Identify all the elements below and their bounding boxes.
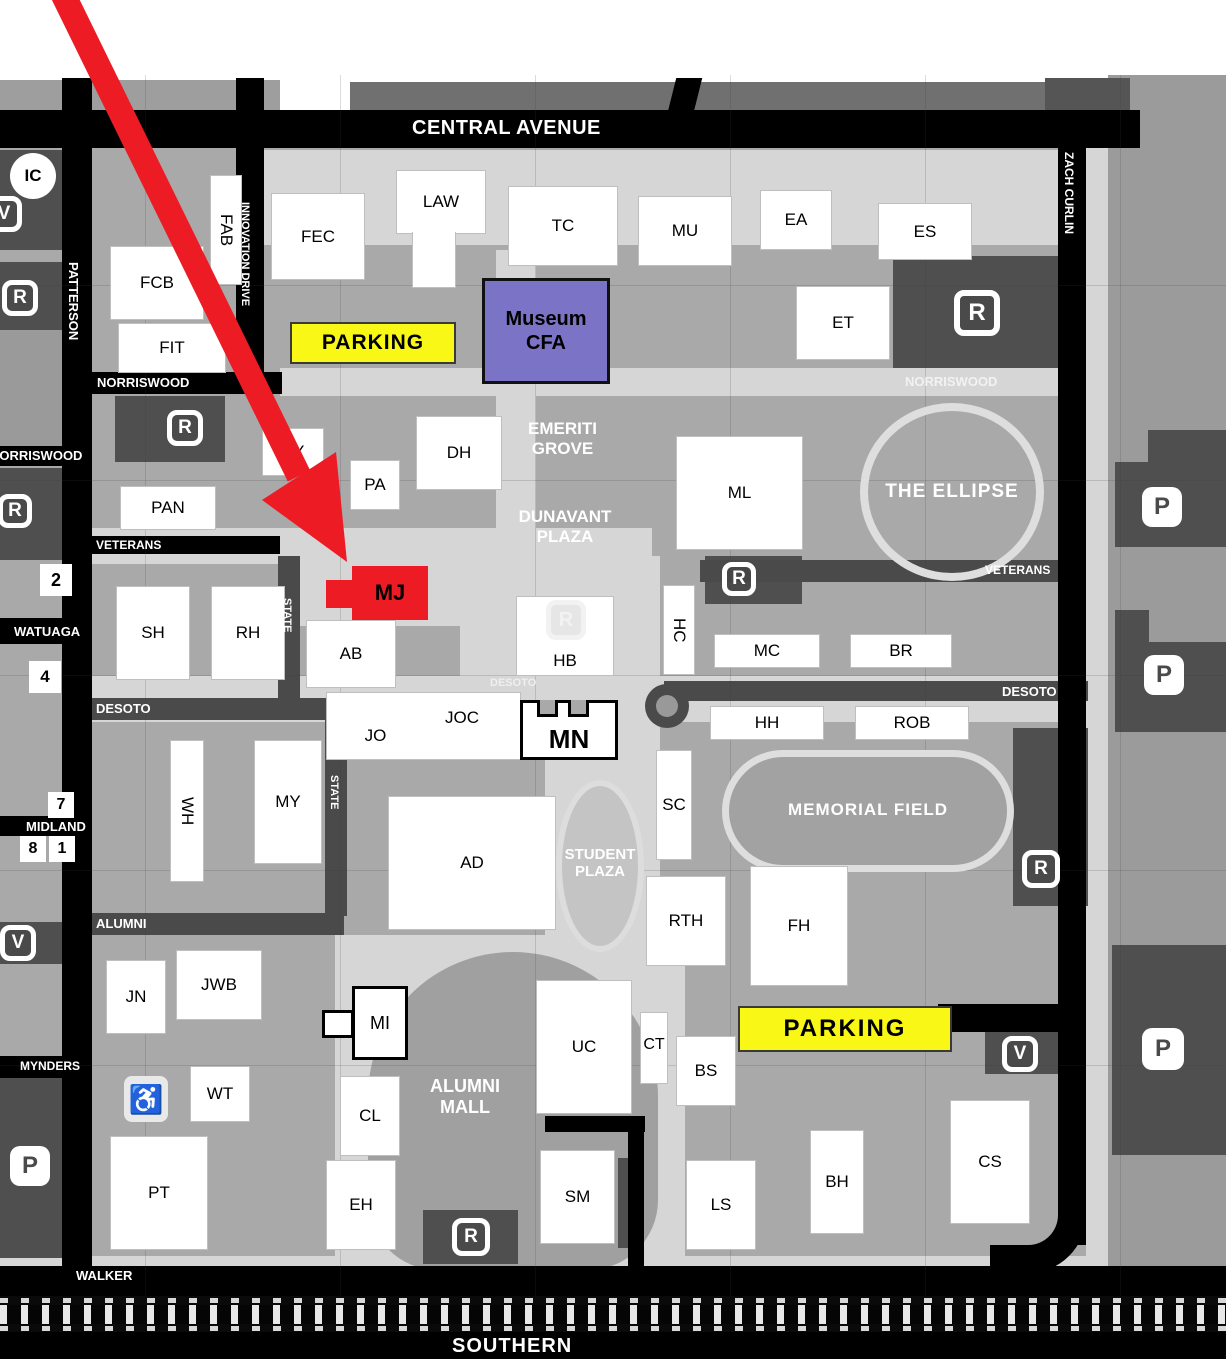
r-parking-badge: R bbox=[1022, 850, 1060, 888]
roundabout-center bbox=[656, 695, 678, 717]
building-mi-annex bbox=[322, 1010, 354, 1038]
building-ls: LS bbox=[686, 1160, 756, 1250]
street-innovation-drive: INNOVATION DRIVE bbox=[239, 202, 251, 306]
area-the-ellipse: THE ELLIPSE bbox=[870, 480, 1034, 504]
area-dunavant-line2: PLAZA bbox=[537, 527, 594, 547]
building-mj: MJ bbox=[352, 566, 428, 620]
street-central-avenue: CENTRAL AVENUE bbox=[412, 117, 601, 140]
street-watauga: WATUAGA bbox=[14, 624, 80, 639]
campus-map: FAB FEC LAW TC MU EA ES FCB FIT ET SY PA… bbox=[0, 0, 1226, 1359]
building-fcb: FCB bbox=[110, 246, 204, 320]
parking-sign-north: PARKING bbox=[290, 322, 456, 364]
street-desoto-west: DESOTO bbox=[96, 701, 151, 716]
visitor-badge: V bbox=[0, 925, 36, 961]
road-southern bbox=[0, 1332, 1226, 1359]
north-strip-dark bbox=[1045, 78, 1130, 112]
area-student-line2: PLAZA bbox=[575, 863, 625, 880]
building-tc: TC bbox=[508, 186, 618, 266]
area-emeriti-grove: EMERITI GROVE bbox=[505, 418, 620, 460]
building-mu: MU bbox=[638, 196, 732, 266]
building-uc: UC bbox=[536, 980, 632, 1114]
building-jwb: JWB bbox=[176, 950, 262, 1020]
building-sh: SH bbox=[116, 586, 190, 680]
building-museum-cfa: Museum CFA bbox=[482, 278, 610, 384]
building-fab-label: FAB bbox=[216, 214, 236, 246]
street-veterans-west: VETERANS bbox=[96, 538, 161, 552]
p-parking-badge: P bbox=[1142, 487, 1182, 527]
accessible-icon: ♿ bbox=[124, 1076, 168, 1122]
road-patterson bbox=[62, 78, 92, 1268]
railroad-ties bbox=[0, 1326, 1226, 1331]
building-mn-notch bbox=[568, 700, 589, 717]
building-cs: CS bbox=[950, 1100, 1030, 1224]
building-hh: HH bbox=[710, 706, 824, 740]
street-norriswood-edge-label: NORRISWOOD bbox=[0, 448, 82, 463]
area-alumni-mall: ALUMNI MALL bbox=[405, 1074, 525, 1120]
street-patterson: PATTERSON bbox=[66, 262, 81, 340]
area-emeriti-line2: GROVE bbox=[532, 439, 593, 459]
building-pan: PAN bbox=[120, 486, 216, 530]
sidewalk-east bbox=[1086, 145, 1108, 1266]
p-parking-badge: P bbox=[10, 1146, 50, 1186]
street-alumni: ALUMNI bbox=[96, 916, 147, 931]
street-desoto-east: DESOTO bbox=[1002, 684, 1057, 699]
lot-number-badge: 8 bbox=[20, 836, 46, 862]
building-ea: EA bbox=[760, 190, 832, 250]
building-jn: JN bbox=[106, 960, 166, 1034]
lot-number-badge: 2 bbox=[40, 564, 72, 596]
building-hc: HC bbox=[663, 585, 695, 675]
railroad-ties bbox=[0, 1305, 1226, 1324]
building-wt: WT bbox=[190, 1066, 250, 1122]
building-ml: ML bbox=[676, 436, 803, 550]
street-desoto-center: DESOTO bbox=[490, 677, 536, 689]
street-walker: WALKER bbox=[76, 1268, 132, 1283]
area-dunavant-plaza: DUNAVANT PLAZA bbox=[500, 506, 630, 548]
parking-sign-south: PARKING bbox=[738, 1006, 952, 1052]
building-ad: AD bbox=[388, 796, 556, 930]
building-rth: RTH bbox=[646, 876, 726, 966]
museum-label-line2: CFA bbox=[526, 331, 566, 355]
building-sc: SC bbox=[656, 750, 692, 860]
building-wh-label: WH bbox=[177, 797, 197, 825]
road-walker bbox=[0, 1266, 1226, 1296]
building-bh: BH bbox=[810, 1130, 864, 1234]
building-mi: MI bbox=[352, 986, 408, 1060]
area-dunavant-line1: DUNAVANT bbox=[519, 507, 612, 527]
building-sy: SY bbox=[262, 428, 324, 476]
building-wh: WH bbox=[170, 740, 204, 882]
r-parking-badge-ghost: R bbox=[546, 600, 586, 640]
building-es: ES bbox=[878, 203, 972, 260]
lot-number-badge: 7 bbox=[48, 792, 74, 818]
gridline bbox=[1120, 75, 1121, 1296]
building-rh: RH bbox=[211, 586, 285, 680]
r-parking-badge: R bbox=[452, 1218, 490, 1256]
r-parking-badge: R bbox=[722, 562, 756, 596]
street-zach-curlin: ZACH CURLIN bbox=[1062, 152, 1076, 234]
building-ct-label: CT bbox=[632, 1032, 676, 1058]
building-jo-label: JO bbox=[348, 722, 403, 750]
area-mall-line1: ALUMNI bbox=[430, 1076, 500, 1097]
street-norriswood-east: NORRISWOOD bbox=[905, 374, 997, 389]
p-parking-badge: P bbox=[1142, 1028, 1184, 1070]
area-emeriti-line1: EMERITI bbox=[528, 419, 597, 439]
street-southern: SOUTHERN bbox=[452, 1335, 572, 1358]
building-et: ET bbox=[796, 286, 890, 360]
area-student-line1: STUDENT bbox=[565, 846, 636, 863]
road-zach-curlin bbox=[1058, 145, 1086, 1245]
building-eh: EH bbox=[326, 1160, 396, 1250]
area-mall-line2: MALL bbox=[440, 1097, 490, 1118]
building-pa: PA bbox=[350, 460, 400, 510]
r-parking-badge: R bbox=[167, 410, 203, 446]
street-state-south: STATE bbox=[328, 775, 340, 809]
lot-number-badge: 1 bbox=[49, 836, 75, 862]
building-dh: DH bbox=[416, 416, 502, 490]
building-ab: AB bbox=[306, 620, 396, 688]
r-parking-badge: R bbox=[2, 280, 38, 316]
street-mynders: MYNDERS bbox=[20, 1059, 80, 1073]
street-norriswood-edge: NORRISWOOD bbox=[0, 448, 84, 464]
lot-number-badge: 4 bbox=[29, 661, 61, 693]
railroad-ties bbox=[0, 1298, 1226, 1303]
r-parking-badge: R bbox=[0, 494, 32, 528]
area-student-plaza: STUDENT PLAZA bbox=[546, 842, 654, 884]
visitor-badge: V bbox=[0, 196, 22, 232]
area-memorial-field: MEMORIAL FIELD bbox=[742, 798, 994, 822]
visitor-badge: V bbox=[1002, 1036, 1038, 1072]
street-midland: MIDLAND bbox=[26, 819, 86, 834]
building-bs: BS bbox=[676, 1036, 736, 1106]
building-law-wing bbox=[412, 232, 456, 288]
building-pt: PT bbox=[110, 1136, 208, 1250]
building-cl: CL bbox=[340, 1076, 400, 1156]
street-veterans-east: VETERANS bbox=[985, 563, 1050, 577]
r-parking-badge: R bbox=[954, 290, 1000, 336]
museum-label-line1: Museum bbox=[505, 307, 586, 331]
building-my: MY bbox=[254, 740, 322, 864]
building-joc-label: JOC bbox=[428, 704, 496, 732]
ic-badge: IC bbox=[10, 153, 56, 199]
building-fit: FIT bbox=[118, 323, 226, 373]
p-parking-badge: P bbox=[1144, 655, 1184, 695]
building-fec: FEC bbox=[271, 193, 365, 280]
street-state-north: STATE bbox=[281, 598, 293, 632]
building-mn-notch bbox=[537, 700, 558, 717]
building-fab: FAB bbox=[210, 175, 242, 285]
building-fh: FH bbox=[750, 866, 848, 986]
building-law: LAW bbox=[396, 170, 486, 234]
building-rob: ROB bbox=[855, 706, 969, 740]
building-hc-label: HC bbox=[669, 618, 689, 643]
building-sm: SM bbox=[540, 1150, 615, 1244]
building-mc: MC bbox=[714, 634, 820, 668]
road-uc-loop bbox=[628, 1116, 644, 1268]
building-br: BR bbox=[850, 634, 952, 668]
road-garage-entry bbox=[938, 1004, 1086, 1032]
street-norriswood-west: NORRISWOOD bbox=[97, 375, 189, 390]
lot bbox=[0, 330, 62, 448]
